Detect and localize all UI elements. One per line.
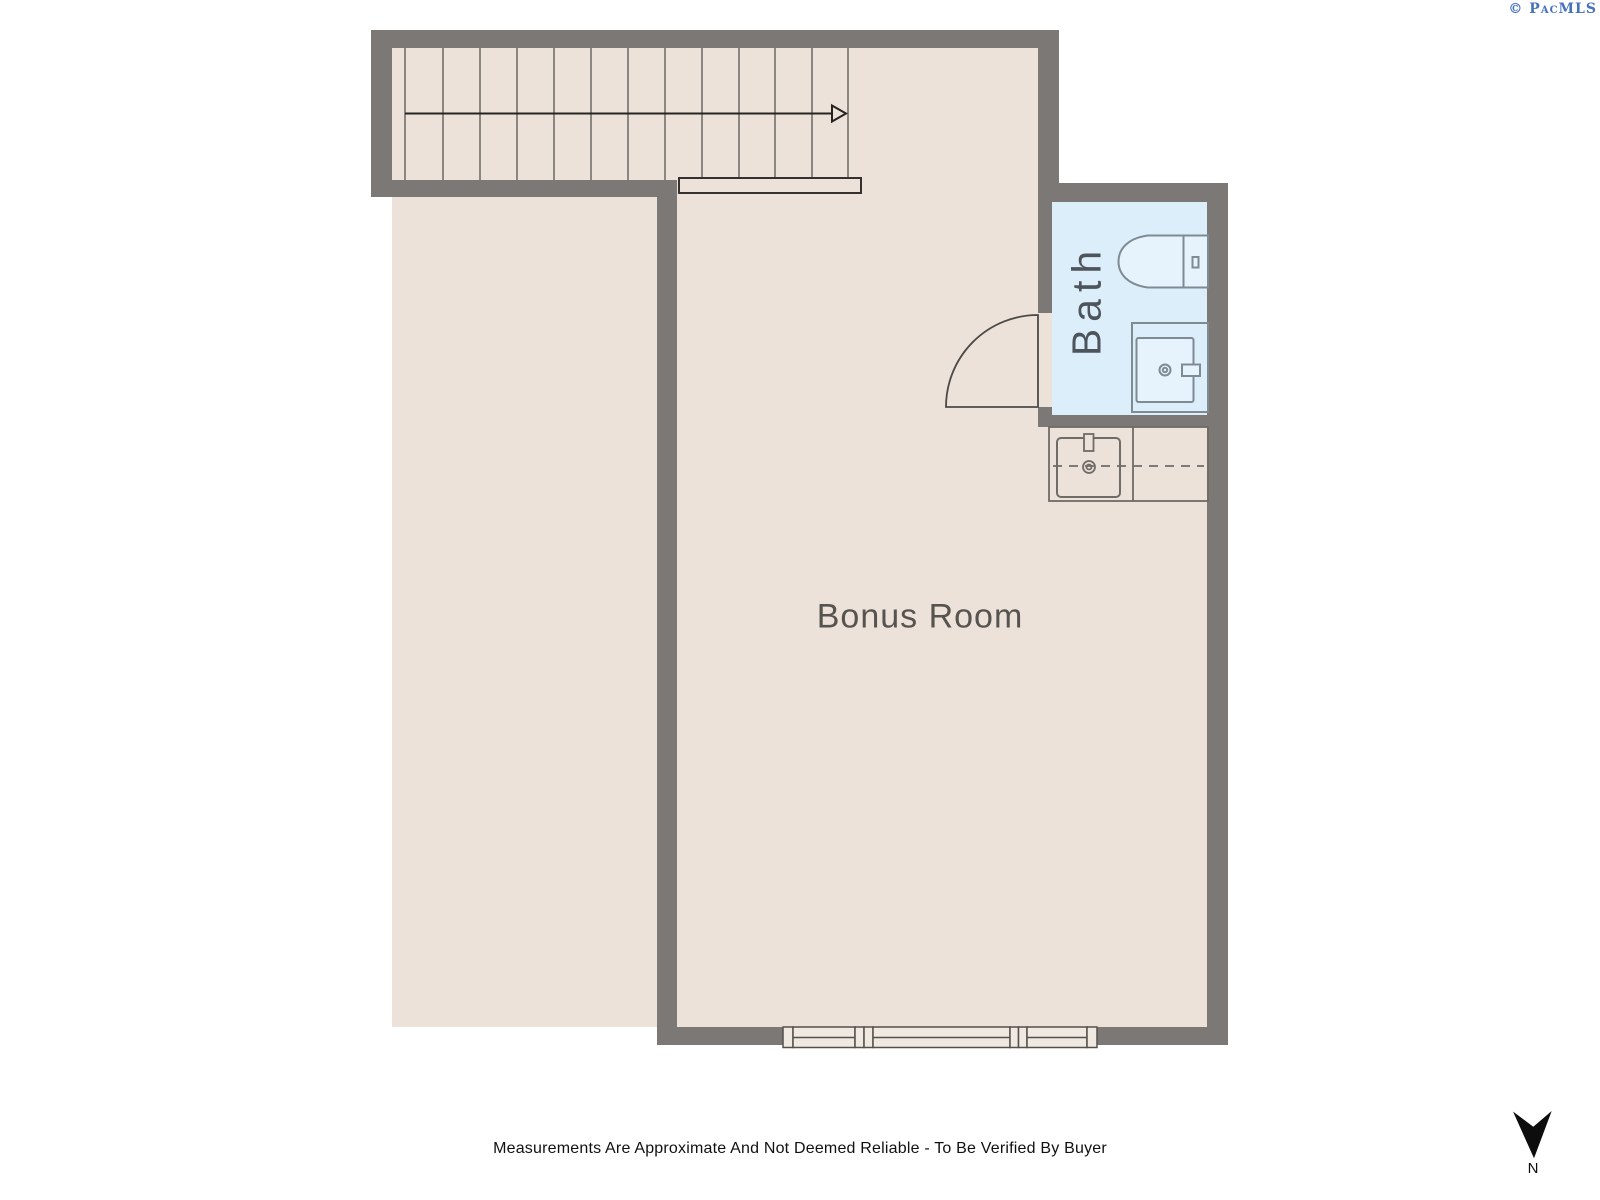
door-opening-threshold (1038, 313, 1052, 407)
wall-bath-top (1038, 183, 1228, 202)
toilet-icon (1119, 236, 1209, 288)
room-label-bonus-room: Bonus Room (817, 598, 1024, 637)
wall-bath-left-upper (1038, 202, 1052, 313)
floor-plan-page: © PacMLS Bonus Room Bath Measurements Ar… (0, 0, 1600, 1200)
wall-top (371, 30, 1059, 48)
floor-plan-drawing (0, 0, 1600, 1200)
bonus-room-floor-right-extension (1038, 427, 1207, 1027)
disclaimer-text: Measurements Are Approximate And Not Dee… (0, 1140, 1600, 1158)
wall-upper-right (1038, 30, 1059, 183)
compass-north-label: N (1528, 1160, 1539, 1177)
wall-right (1207, 183, 1228, 1045)
wall-stairwell-bottom (371, 180, 677, 197)
watermark: © PacMLS (1508, 1, 1597, 17)
wall-bonus-left (657, 180, 677, 1045)
wall-stairwell-left (371, 30, 392, 197)
room-label-bath: Bath (1064, 244, 1111, 356)
window-icon (783, 1027, 1097, 1048)
stair-railing (679, 178, 861, 193)
wall-bath-bottom (1038, 415, 1208, 427)
